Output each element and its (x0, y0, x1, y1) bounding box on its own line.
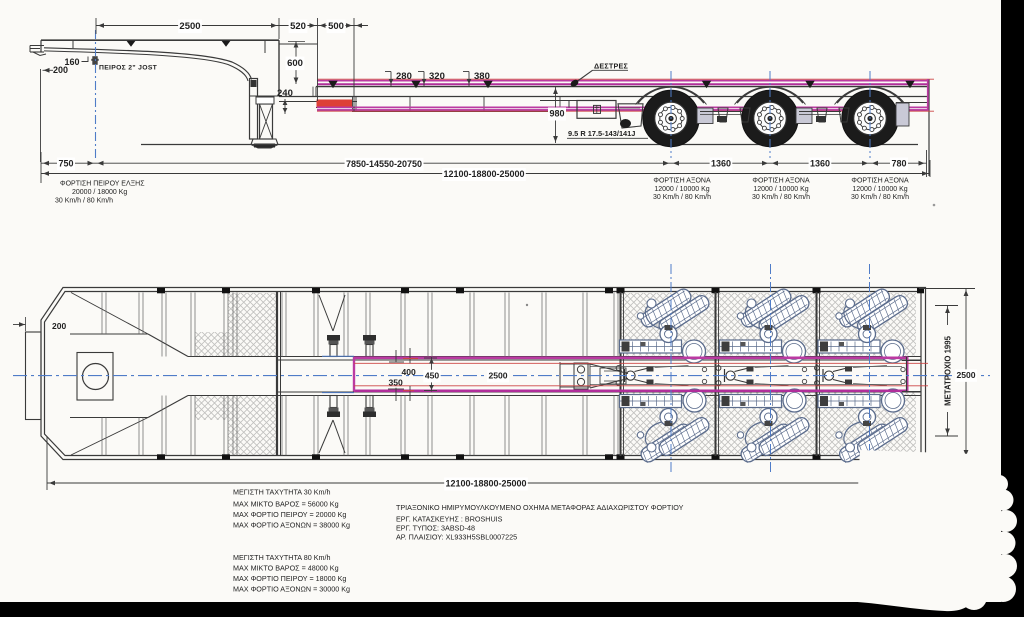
svg-text:500: 500 (328, 21, 344, 32)
svg-text:ΦΟΡΤΙΣΗ ΑΞΟΝΑ: ΦΟΡΤΙΣΗ ΑΞΟΝΑ (653, 178, 711, 185)
svg-text:450: 450 (425, 371, 440, 381)
svg-text:12000 / 10000 Kg: 12000 / 10000 Kg (852, 186, 907, 193)
svg-text:380: 380 (474, 71, 490, 82)
svg-text:ΦΟΡΤΙΣΗ ΠΕΙΡΟΥ ΕΛΞΗΣ: ΦΟΡΤΙΣΗ ΠΕΙΡΟΥ ΕΛΞΗΣ (60, 181, 145, 188)
svg-text:ΠΕΙΡΟΣ 2” JOST: ΠΕΙΡΟΣ 2” JOST (99, 65, 158, 72)
svg-text:9.5 R 17.5-143/141J: 9.5 R 17.5-143/141J (568, 129, 635, 138)
svg-text:2500: 2500 (179, 21, 200, 32)
svg-text:30 Km/h / 80 Km/h: 30 Km/h / 80 Km/h (55, 198, 113, 205)
svg-text:MAX ΦΟΡΤΙΟ ΠΕΙΡΟΥ = 20000 Kg: MAX ΦΟΡΤΙΟ ΠΕΙΡΟΥ = 20000 Kg (233, 510, 346, 519)
svg-text:400: 400 (402, 367, 417, 377)
svg-text:ΦΟΡΤΙΣΗ ΑΞΟΝΑ: ΦΟΡΤΙΣΗ ΑΞΟΝΑ (851, 178, 909, 185)
svg-text:780: 780 (891, 159, 906, 169)
svg-text:2500: 2500 (488, 371, 507, 381)
svg-text:ΕΡΓ. ΤΥΠΟΣ: 3ABSD-48: ΕΡΓ. ΤΥΠΟΣ: 3ABSD-48 (396, 524, 475, 533)
svg-text:12000 / 10000 Kg: 12000 / 10000 Kg (654, 186, 709, 193)
svg-text:MAX ΦΟΡΤΙΟ ΠΕΙΡΟΥ = 18000 Kg: MAX ΦΟΡΤΙΟ ΠΕΙΡΟΥ = 18000 Kg (233, 574, 346, 583)
svg-text:7850-14550-20750: 7850-14550-20750 (346, 159, 422, 169)
svg-text:200: 200 (52, 321, 66, 331)
svg-text:12100-18800-25000: 12100-18800-25000 (443, 169, 524, 179)
svg-text:MAX ΦΟΡΤΙΟ ΑΞΟΝΩΝ = 30000 Kg: MAX ΦΟΡΤΙΟ ΑΞΟΝΩΝ = 30000 Kg (233, 585, 350, 594)
svg-text:ΜΕΓΙΣΤΗ ΤΑΧΥΤΗΤΑ 80 Km/h: ΜΕΓΙΣΤΗ ΤΑΧΥΤΗΤΑ 80 Km/h (233, 553, 330, 562)
svg-text:MAX ΜΙΚΤΟ ΒΑΡΟΣ = 56000 Kg: MAX ΜΙΚΤΟ ΒΑΡΟΣ = 56000 Kg (233, 500, 339, 509)
svg-text:MAX ΦΟΡΤΙΟ ΑΞΟΝΩΝ = 38000 Kg: MAX ΦΟΡΤΙΟ ΑΞΟΝΩΝ = 38000 Kg (233, 521, 350, 530)
svg-text:320: 320 (429, 71, 445, 82)
svg-text:12100-18800-25000: 12100-18800-25000 (445, 479, 526, 489)
svg-text:750: 750 (58, 159, 73, 169)
svg-text:520: 520 (290, 21, 306, 32)
svg-text:ΔΕΣΤΡΕΣ: ΔΕΣΤΡΕΣ (594, 62, 628, 71)
svg-text:2500: 2500 (956, 370, 975, 380)
svg-text:ΤΡΙΑΞΟΝΙΚΟ ΗΜΙΡΥΜΟΥΛΚΟΥΜΕΝΟ ΟΧ: ΤΡΙΑΞΟΝΙΚΟ ΗΜΙΡΥΜΟΥΛΚΟΥΜΕΝΟ ΟΧΗΜΑ ΜΕΤΑΦΟ… (396, 503, 684, 512)
svg-text:ΑΡ. ΠΛΑΙΣΙΟΥ: XL933H5SBL000722: ΑΡ. ΠΛΑΙΣΙΟΥ: XL933H5SBL0007225 (396, 533, 517, 542)
svg-text:12000 / 10000 Kg: 12000 / 10000 Kg (753, 186, 808, 193)
svg-text:30 Km/h / 80 Km/h: 30 Km/h / 80 Km/h (653, 194, 711, 201)
svg-text:600: 600 (287, 58, 303, 69)
svg-text:30 Km/h / 80 Km/h: 30 Km/h / 80 Km/h (851, 194, 909, 201)
svg-text:ΜΕΓΙΣΤΗ ΤΑΧΥΤΗΤΑ 30 Km/h: ΜΕΓΙΣΤΗ ΤΑΧΥΤΗΤΑ 30 Km/h (233, 488, 330, 497)
svg-text:MAX ΜΙΚΤΟ ΒΑΡΟΣ = 48000 Kg: MAX ΜΙΚΤΟ ΒΑΡΟΣ = 48000 Kg (233, 564, 339, 573)
svg-text:ΦΟΡΤΙΣΗ ΑΞΟΝΑ: ΦΟΡΤΙΣΗ ΑΞΟΝΑ (752, 178, 810, 185)
svg-text:240: 240 (277, 88, 293, 99)
svg-text:280: 280 (396, 71, 412, 82)
svg-text:200: 200 (53, 65, 68, 75)
svg-text:1360: 1360 (810, 159, 830, 169)
svg-text:ΜΕΤΑΤΡΟΧΙΟ 1995: ΜΕΤΑΤΡΟΧΙΟ 1995 (944, 335, 953, 405)
svg-text:1360: 1360 (711, 159, 731, 169)
svg-text:350: 350 (389, 378, 404, 388)
svg-text:20000 / 18000 Kg: 20000 / 18000 Kg (72, 189, 127, 196)
svg-text:980: 980 (549, 109, 564, 119)
svg-text:30 Km/h / 80 Km/h: 30 Km/h / 80 Km/h (752, 194, 810, 201)
svg-text:ΕΡΓ. ΚΑΤΑΣΚΕΥΗΣ : BROSHUIS: ΕΡΓ. ΚΑΤΑΣΚΕΥΗΣ : BROSHUIS (396, 515, 503, 524)
